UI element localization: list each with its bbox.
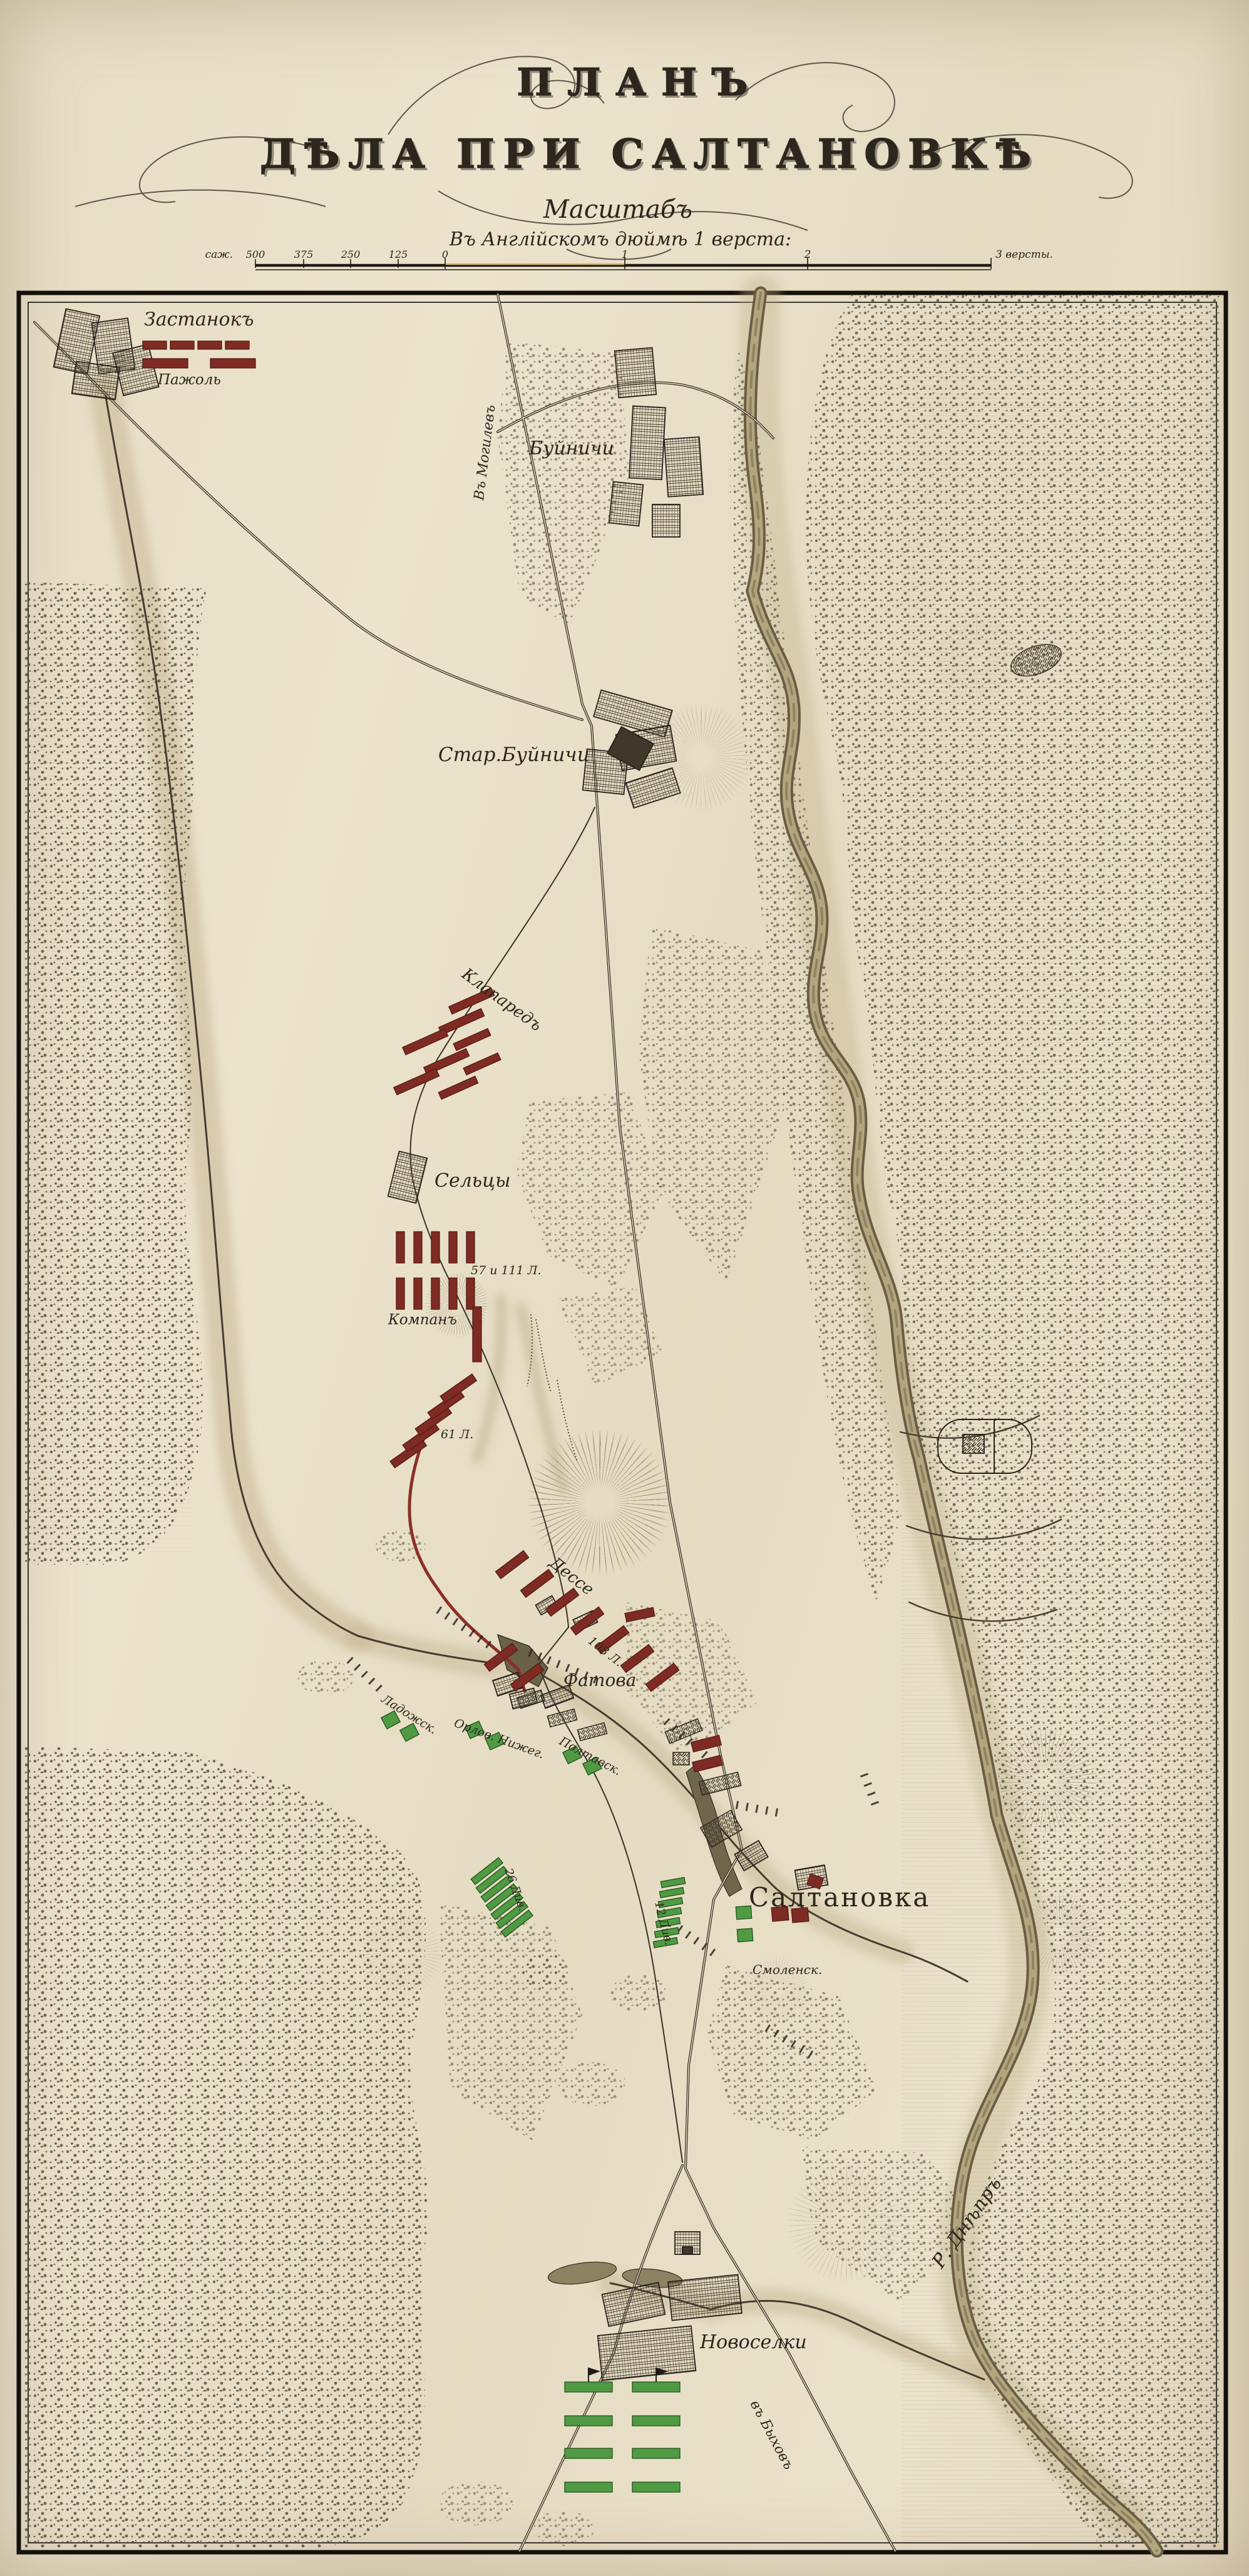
label-fatova: Фатова (563, 1670, 636, 1690)
label-pajol: Пажоль (157, 372, 221, 388)
label-seltsy: Сельцы (434, 1170, 511, 1192)
scale-label-right: 3 версты. (995, 248, 1053, 261)
label-buinichi: Буйничи (528, 437, 614, 459)
label-zastanok: Застанокъ (144, 309, 254, 330)
map-canvas: ПЛАНЪ ПЛАНЪ ДѢЛА ПРИ САЛТАНОВКѢ ДѢЛА ПРИ… (0, 0, 1249, 2576)
scale-heading: Масштабъ (543, 195, 692, 224)
label-smolensky: Смоленск. (753, 1962, 822, 1977)
unit-61st-line (390, 1374, 476, 1468)
label-orlovsky-nizhegorodsky: Орлов. Нижег. (452, 1716, 546, 1762)
scale-unit-left: саж. (205, 248, 233, 261)
map-title-line2: ДѢЛА ПРИ САЛТАНОВКѢ (260, 131, 1040, 178)
scale-tick: 250 (341, 248, 361, 260)
label-61st-line: 61 Л. (441, 1428, 473, 1441)
label-v-mogilev: Въ Могилевъ (471, 404, 499, 501)
scale-tick: 500 (246, 248, 265, 260)
russian-units (381, 1711, 753, 2492)
label-saltanovka: Салтановка (749, 1882, 930, 1913)
label-57-111-line: 57 и 111 Л. (471, 1264, 542, 1277)
label-novoselki: Новоселки (699, 2331, 807, 2353)
label-star-buinichi: Стар.Буйничи (438, 744, 590, 766)
map-title-line1-shadow: ПЛАНЪ (520, 63, 766, 107)
forest-patches (25, 294, 1222, 2548)
label-v-bykhov: въ Быховъ (747, 2398, 796, 2472)
scale-note: Въ Англійскомъ дюймѣ 1 верста: (449, 228, 791, 250)
russian-reserve-columns (565, 2382, 680, 2492)
label-compans: Компанъ (388, 1312, 457, 1328)
scale-tick: 125 (389, 248, 408, 260)
scale-tick: 375 (294, 248, 314, 260)
unit-pajol-cavalry (143, 341, 255, 368)
unit-compans-57-111-line (396, 1232, 481, 1362)
village-seltsy (388, 1152, 428, 1204)
village-zastanok (54, 309, 159, 399)
battle-map-engraving: ПЛАНЪ ПЛАНЪ ДѢЛА ПРИ САЛТАНОВКѢ ДѢЛА ПРИ… (0, 0, 1249, 2576)
village-star-buinichi (583, 690, 681, 808)
title-block: ПЛАНЪ ПЛАНЪ ДѢЛА ПРИ САЛТАНОВКѢ ДѢЛА ПРИ… (75, 56, 1133, 270)
